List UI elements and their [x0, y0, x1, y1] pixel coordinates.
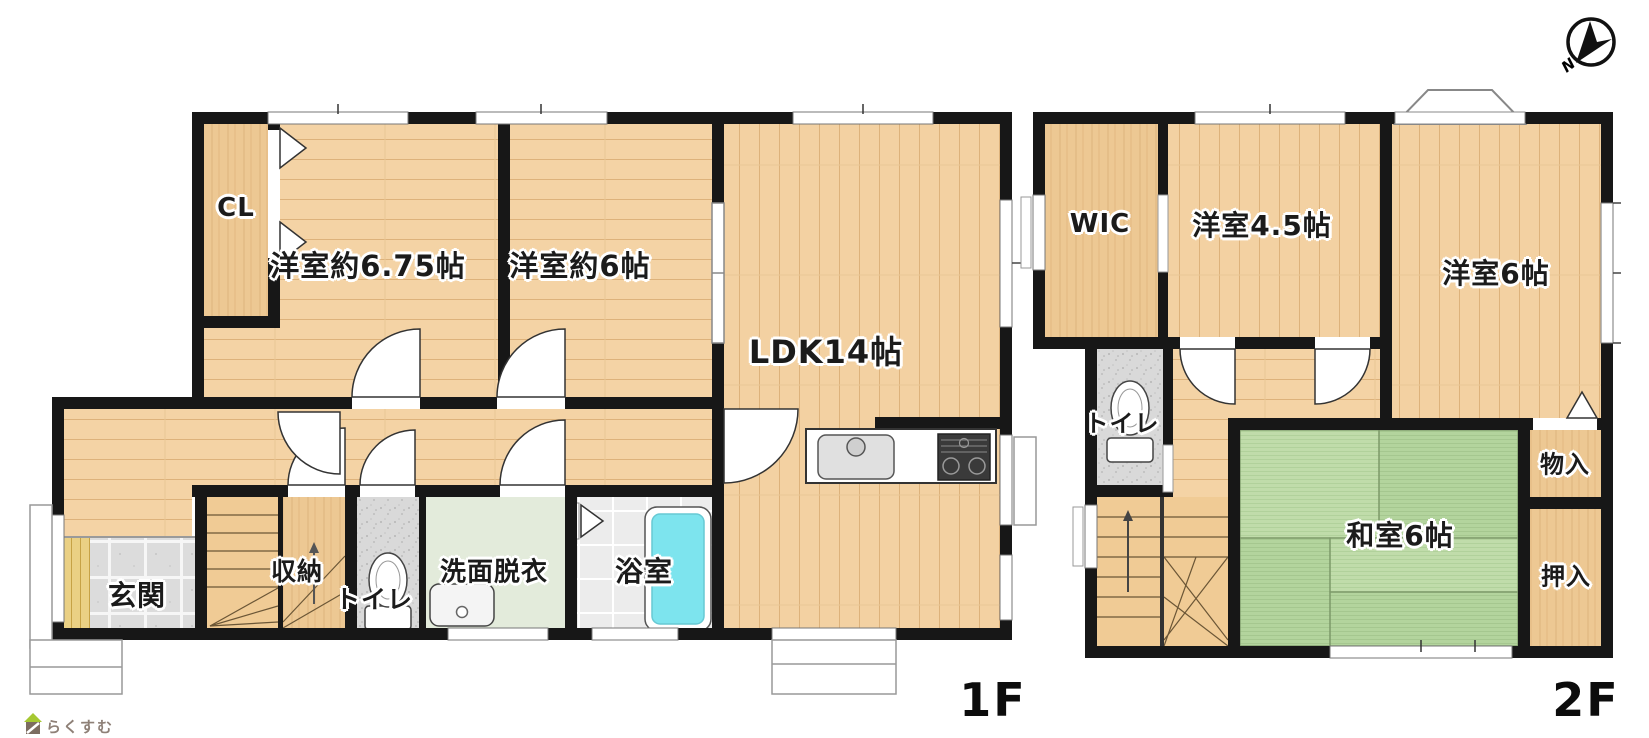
washbasin-icon	[430, 584, 494, 626]
room-label-cl: CL	[217, 193, 255, 223]
room-label-mono-ire: 物入	[1540, 445, 1590, 480]
room-label-wic: WIC	[1070, 209, 1130, 239]
room-label-bedroom-6: 洋室約6帖	[509, 243, 650, 285]
compass-icon: N	[1558, 19, 1614, 76]
room-label-toilet-2f: トイレ	[1085, 404, 1160, 439]
logo-text: らくすむ	[46, 716, 114, 737]
terrace-step	[772, 640, 896, 694]
toilet-2f-opening	[1163, 445, 1173, 492]
entrance-door-icon	[52, 515, 64, 622]
logo-house-icon	[24, 713, 42, 734]
floorplan-canvas: N CL 洋室約6.75帖 洋室約6帖 LDK14帖 玄関 収納 トイレ 洗面脱…	[0, 0, 1649, 738]
wic-opening	[1158, 195, 1168, 272]
room-label-bedroom-6-2f: 洋室6帖	[1442, 252, 1549, 292]
room-label-oshi-ire: 押入	[1541, 557, 1591, 592]
room-label-bedroom-45: 洋室4.5帖	[1192, 204, 1332, 244]
stove-icon	[938, 434, 990, 480]
room-label-bedroom-675: 洋室約6.75帖	[270, 243, 466, 285]
floor-title-1f: 1F	[959, 673, 1026, 727]
room-label-shuno: 収納	[271, 552, 323, 588]
room-label-senmen: 洗面脱衣	[440, 552, 548, 589]
room-label-washitsu: 和室6帖	[1346, 514, 1453, 554]
room-label-bathroom: 浴室	[615, 550, 673, 590]
room-label-toilet-1f: トイレ	[335, 580, 413, 616]
room-label-ldk: LDK14帖	[749, 327, 903, 373]
room-label-genkan: 玄関	[108, 574, 166, 614]
floor-title-2f: 2F	[1552, 673, 1619, 727]
